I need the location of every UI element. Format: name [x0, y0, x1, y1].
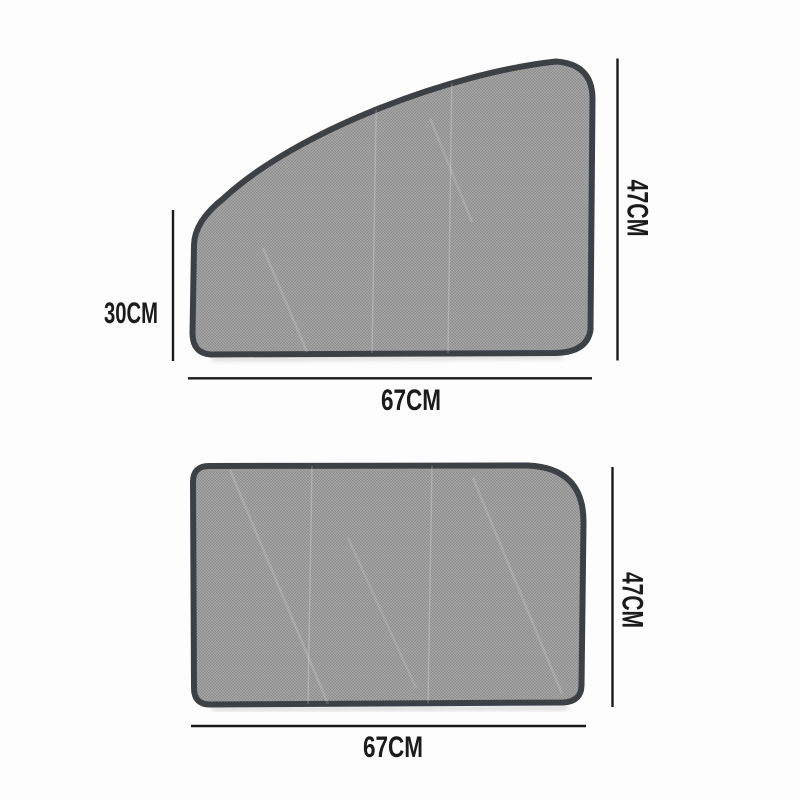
product-dimension-diagram: 30CM 47CM 67CM 47CM 67CM [0, 0, 800, 800]
rear-bottom-width-label: 67CM [363, 731, 423, 764]
rear-right-height-label: 47CM [616, 572, 649, 628]
front-bottom-width-label: 67CM [381, 384, 441, 417]
front-left-height-label: 30CM [104, 297, 158, 330]
front-shade-shadow [212, 357, 562, 359]
rear-window-sunshade-shape [193, 466, 584, 705]
sunshade-dimension-svg: 30CM 47CM 67CM 47CM 67CM [0, 0, 800, 800]
front-right-height-label: 47CM [621, 180, 654, 237]
front-window-sunshade-shape [193, 62, 593, 355]
rear-shade-shadow [212, 708, 568, 709]
